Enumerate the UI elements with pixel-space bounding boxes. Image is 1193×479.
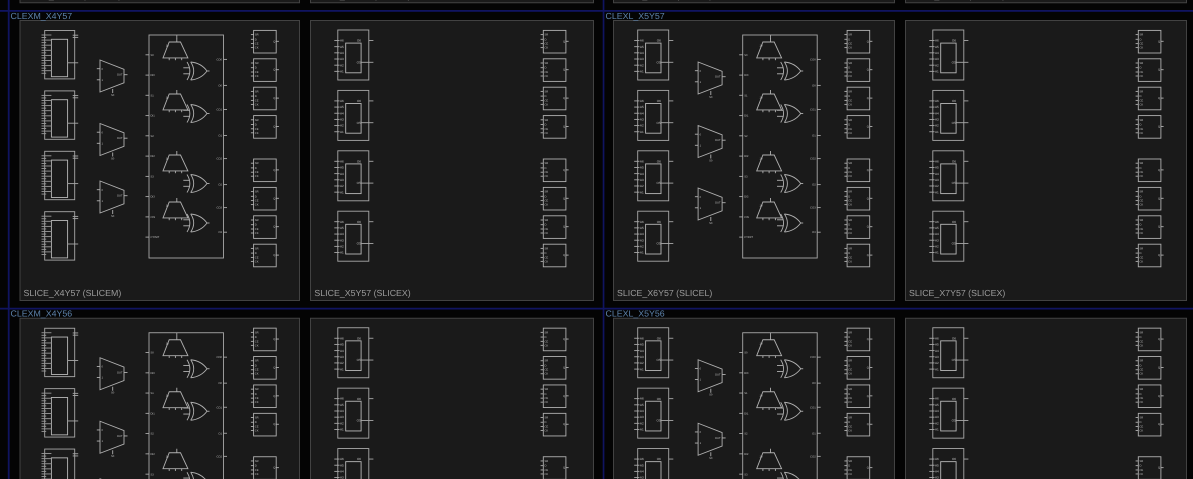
svg-text:SLICE_X5Y57 (SLICEX): SLICE_X5Y57 (SLICEX) [314,288,410,298]
svg-text:SLICE_X4Y57 (SLICEM): SLICE_X4Y57 (SLICEM) [24,288,122,298]
svg-text:SLICE_X7Y57 (SLICEX): SLICE_X7Y57 (SLICEX) [909,288,1005,298]
svg-text:CLEXM_X4Y57: CLEXM_X4Y57 [11,11,73,21]
svg-text:CLEXM_X4Y56: CLEXM_X4Y56 [11,309,73,319]
svg-text:CLEXL_X5Y56: CLEXL_X5Y56 [606,309,665,319]
svg-text:SLICE_X6Y57 (SLICEL): SLICE_X6Y57 (SLICEL) [617,288,712,298]
svg-text:CLEXL_X5Y57: CLEXL_X5Y57 [606,11,665,21]
